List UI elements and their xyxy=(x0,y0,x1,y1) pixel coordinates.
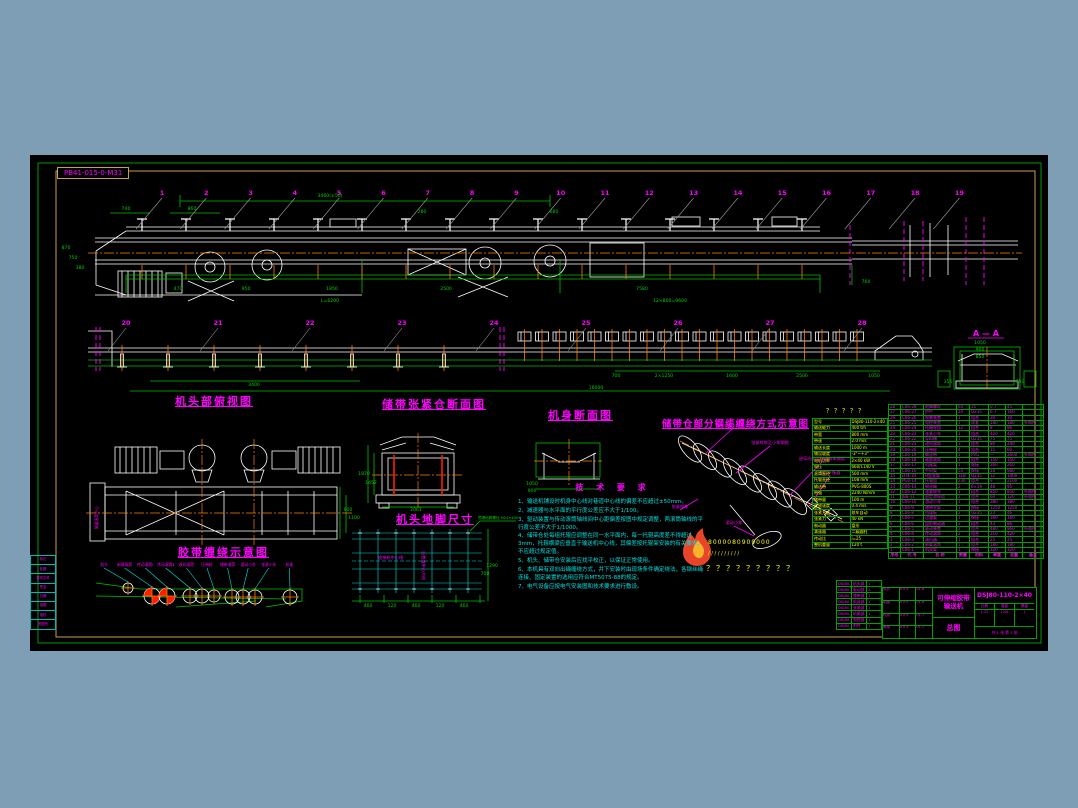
svg-text:9: 9 xyxy=(514,189,519,197)
border-revision-strip: 标记处数更改文件签名日期描图描校底图号 xyxy=(30,555,56,630)
svg-text:350: 350 xyxy=(1016,379,1025,385)
svg-text:储带滚筒: 储带滚筒 xyxy=(220,562,235,567)
svg-text:张紧小车: 张紧小车 xyxy=(261,562,276,567)
svg-text:2: 2 xyxy=(204,189,209,197)
scale-weight-qty-cells: 比例1:25重量120t数量1 xyxy=(975,604,1034,627)
svg-text:850: 850 xyxy=(976,354,985,360)
svg-text:13: 13 xyxy=(689,189,698,197)
svg-text:改向滚筒: 改向滚筒 xyxy=(179,562,194,567)
svg-text:900: 900 xyxy=(344,507,353,513)
svg-text:16: 16 xyxy=(822,189,832,197)
svg-text:11: 11 xyxy=(600,189,610,197)
section-aa-label: A — A xyxy=(973,329,1000,338)
title-block-cell: 比例1:25 xyxy=(975,604,995,626)
svg-text:压带轮: 压带轮 xyxy=(201,562,213,567)
svg-text:机头: 机头 xyxy=(100,562,108,567)
title-block-signature-fields: 设计×××01.6制图×××01.6校对×××01.7审核×××01.7 xyxy=(883,588,933,638)
svg-text:1870: 1870 xyxy=(358,471,370,477)
svg-text:2500: 2500 xyxy=(796,373,808,379)
table-row: 签名 xyxy=(31,583,56,592)
table-row: 底图号 xyxy=(31,620,56,629)
svg-text:900: 900 xyxy=(976,347,985,353)
technical-note: 2、减速器与水平面的平行度公差应不大于1/100。 xyxy=(518,508,708,516)
svg-text:1050: 1050 xyxy=(868,373,880,379)
parts-list-header: 序号代 号名 称数量材料单重总重备注 xyxy=(889,553,1044,558)
svg-text:18: 18 xyxy=(911,189,921,197)
drawing-number: DSJ80-110-2×40 xyxy=(975,588,1034,604)
product-name-line2: 输送机 xyxy=(933,603,974,610)
signature-row: 校对×××01.7 xyxy=(883,614,932,627)
svg-text:380: 380 xyxy=(76,265,85,271)
svg-text:460: 460 xyxy=(364,603,373,609)
technical-parameters-table: 型号DSJ80-110-2×40输送能力400 t/h带宽800 mm带速2.0… xyxy=(812,418,888,549)
svg-text:19: 19 xyxy=(955,189,965,197)
anchor-grid xyxy=(352,529,482,593)
svg-text:3400: 3400 xyxy=(248,382,260,388)
svg-text:3: 3 xyxy=(248,189,253,197)
svg-text:860: 860 xyxy=(188,206,197,212)
svg-text:950: 950 xyxy=(242,286,251,292)
svg-text:张紧绞车至小车钢缆: 张紧绞车至小车钢缆 xyxy=(751,439,790,446)
technical-requirements: 技 术 要 求 1、输送机铺设时机身中心线对巷道中心线的偏差不应超过±50mm。… xyxy=(518,482,708,593)
svg-text:1290: 1290 xyxy=(486,563,498,569)
svg-text:16000: 16000 xyxy=(589,385,604,391)
title-tension-section: 储带张紧仓断面图 xyxy=(382,396,486,412)
svg-text:460: 460 xyxy=(412,603,421,609)
svg-text:700: 700 xyxy=(481,571,490,577)
svg-text:17: 17 xyxy=(866,189,875,197)
table-row: DSJ80-8附件1 xyxy=(837,623,882,629)
roller-posts xyxy=(137,219,807,279)
title-body-section: 机身断面图 xyxy=(548,407,613,423)
svg-text:120: 120 xyxy=(388,603,397,609)
elevation-posts xyxy=(117,345,449,371)
callout-balloons: 1234567891011121314151617181920212223242… xyxy=(108,189,964,351)
title-belt-winding: 胶带缠绕示意图 xyxy=(178,544,269,560)
svg-text:1100: 1100 xyxy=(348,515,360,521)
svg-text:2×1250: 2×1250 xyxy=(655,373,674,379)
svg-text:机尾: 机尾 xyxy=(286,562,294,567)
belt-storage-units xyxy=(518,329,864,361)
watermark-row3: ？？？？？？？？？ xyxy=(706,563,796,574)
title-block-cell: 数量1 xyxy=(1015,604,1034,626)
svg-text:26: 26 xyxy=(673,319,683,327)
svg-text:760: 760 xyxy=(862,279,871,285)
svg-text:8: 8 xyxy=(470,189,475,197)
svg-text:12: 12 xyxy=(645,189,654,197)
sheet-type: 总图 xyxy=(933,618,974,638)
svg-text:22: 22 xyxy=(305,319,314,327)
svg-text:卸载滚筒: 卸载滚筒 xyxy=(117,562,132,567)
title-block-cell: 重量120t xyxy=(995,604,1015,626)
svg-text:6: 6 xyxy=(381,189,386,197)
technical-note: 6、本机具有双向出绳缠绕方式，井下安装时由现场条件确定绕法，各钢丝绳连接、固定装… xyxy=(518,567,708,583)
title-cable-winding: 储带仓部分钢缆缠绕方式示意图 xyxy=(662,416,809,430)
svg-text:7580: 7580 xyxy=(636,286,648,292)
signature-row: 制图×××01.6 xyxy=(883,601,932,614)
svg-text:700: 700 xyxy=(612,373,621,379)
technical-note: 1、输送机铺设时机身中心线对巷道中心线的偏差不应超过±50mm。 xyxy=(518,499,708,507)
svg-text:120: 120 xyxy=(436,603,445,609)
title-head-plan: 机头部俯视图 xyxy=(175,393,253,409)
desktop-background: A — A 皮带机中心线 沿巷道中心方向 预埋地脚螺栓 M24×400 卸载滚筒… xyxy=(0,0,1078,808)
anchor-centerline-label: 皮带机中心线 xyxy=(378,554,404,561)
table-row: 整机重量120 t xyxy=(813,542,888,549)
svg-text:游动小车: 游动小车 xyxy=(726,519,743,526)
svg-text:游动小车: 游动小车 xyxy=(241,562,256,567)
svg-text:750: 750 xyxy=(69,255,78,261)
svg-text:1452: 1452 xyxy=(365,480,377,486)
sub-drawings-table: DSJ80-1机头部1DSJ80-2驱动部2DSJ80-3储带部1DSJ80-4… xyxy=(836,580,882,630)
head-left-label: 卸载滚筒中心 xyxy=(94,506,99,529)
svg-text:740: 740 xyxy=(122,206,131,212)
svg-text:280: 280 xyxy=(418,209,427,215)
sheet-count: 共 1 张 第 1 张 xyxy=(975,627,1034,638)
svg-text:7: 7 xyxy=(426,189,431,197)
main-view-linework xyxy=(95,217,1018,301)
drawing-code-label: PB41-015-0-M31 xyxy=(57,167,129,179)
svg-text:680: 680 xyxy=(550,209,559,215)
svg-text:L=6200: L=6200 xyxy=(321,298,339,304)
table-row: 处数 xyxy=(31,565,56,574)
watermark-row1: 8000080909000 xyxy=(708,539,771,546)
product-name: 可伸缩胶带 输送机 xyxy=(933,588,974,618)
title-head-anchor: 机头地脚尺寸 xyxy=(396,511,474,527)
svg-text:24: 24 xyxy=(489,319,499,327)
title-block: 设计×××01.6制图×××01.6校对×××01.7审核×××01.7 可伸缩… xyxy=(882,587,1037,639)
head-plan-linework xyxy=(90,445,340,541)
svg-text:1850: 1850 xyxy=(326,286,338,292)
svg-text:4: 4 xyxy=(293,189,298,197)
anchor-bolt-label: 预埋地脚螺栓 M24×400 xyxy=(478,515,519,520)
svg-text:1050: 1050 xyxy=(974,340,986,346)
svg-text:470: 470 xyxy=(174,286,183,292)
technical-note: 5、机头、储带仓安装后应找平校正，以保证正常使用。 xyxy=(518,558,708,566)
svg-text:2500: 2500 xyxy=(440,286,452,292)
cad-drawing-canvas: A — A 皮带机中心线 沿巷道中心方向 预埋地脚螺栓 M24×400 卸载滚筒… xyxy=(30,155,1048,651)
svg-text:1: 1 xyxy=(160,189,165,197)
table-row: 标记 xyxy=(31,556,56,565)
table-row: 更改文件 xyxy=(31,574,56,583)
svg-text:27: 27 xyxy=(765,319,774,327)
technical-requirements-heading: 技 术 要 求 xyxy=(518,482,708,494)
svg-text:传动滚筒Ⅰ: 传动滚筒Ⅰ xyxy=(137,562,153,567)
signature-row: 设计×××01.6 xyxy=(883,588,932,601)
svg-text:350: 350 xyxy=(944,379,953,385)
svg-text:870: 870 xyxy=(62,245,71,251)
svg-text:23: 23 xyxy=(397,319,406,327)
watermark-row2: / / / / / / / / / / xyxy=(708,551,739,557)
svg-text:10: 10 xyxy=(556,189,566,197)
table-row: 日期 xyxy=(31,592,56,601)
technical-note: 3、驱动装置与传动滚筒轴线间中心距偏差按图中规定调整，两滚筒轴线的平行度公差不大… xyxy=(518,517,708,533)
svg-text:15: 15 xyxy=(778,189,788,197)
technical-note: 4、储带仓处每组托辊应调整在同一水平面内，每一托辊高度差不得超过3mm，托辊横梁… xyxy=(518,533,708,557)
signature-row: 审核×××01.7 xyxy=(883,626,932,638)
parts-list-table: 28C06-28地脚螺栓64350.74527C06-27护栏24Q2356.7… xyxy=(888,404,1044,559)
belt-winding-labels: 机头卸载滚筒传动滚筒Ⅰ传动滚筒Ⅱ改向滚筒压带轮储带滚筒游动小车张紧小车机尾 xyxy=(100,562,293,589)
svg-text:3460(±50): 3460(±50) xyxy=(318,193,343,199)
svg-text:传动滚筒Ⅱ: 传动滚筒Ⅱ xyxy=(157,562,174,567)
anchor-vertical-label: 沿巷道中心方向 xyxy=(420,551,427,580)
table-row: 描图 xyxy=(31,601,56,610)
svg-text:12×800=9600: 12×800=9600 xyxy=(653,298,687,304)
svg-text:25: 25 xyxy=(581,319,591,327)
svg-text:20: 20 xyxy=(121,319,131,327)
svg-text:460: 460 xyxy=(460,603,469,609)
param-table-caption: ？？？？？ xyxy=(826,406,866,415)
belt-winding-pulleys xyxy=(121,581,299,606)
technical-note: 7、电气设备应按电气安装图和技术要求进行敷设。 xyxy=(518,584,708,592)
svg-text:14: 14 xyxy=(733,189,743,197)
table-row: 描校 xyxy=(31,611,56,620)
svg-text:21: 21 xyxy=(213,319,223,327)
svg-text:1600: 1600 xyxy=(726,373,738,379)
svg-text:28: 28 xyxy=(857,319,867,327)
